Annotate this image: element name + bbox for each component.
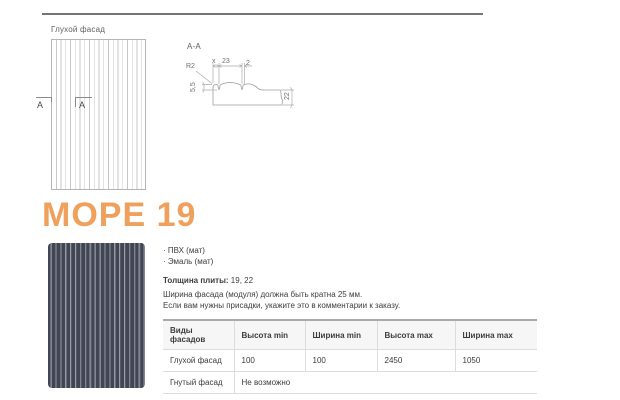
- materials-list: · ПВХ (мат) · Эмаль (мат): [163, 245, 213, 267]
- plate-thickness-label: Толщина плиты:: [163, 276, 229, 285]
- dim-label-radius: R2: [186, 63, 195, 70]
- cell-facade-type: Глухой фасад: [163, 350, 234, 372]
- dim-label-groove: 2: [246, 60, 250, 67]
- cell-width-max: 1050: [455, 350, 537, 372]
- col-header-height-min: Высота min: [234, 320, 305, 350]
- section-profile-drawing: [180, 55, 300, 110]
- section-cut-line-right: [75, 97, 92, 98]
- material-item: · Эмаль (мат): [163, 256, 213, 267]
- top-divider: [42, 13, 483, 15]
- note-drilling-comment: Если вам нужны присадки, укажите это в к…: [163, 300, 400, 311]
- col-header-facade-types: Виды фасадов: [163, 320, 234, 350]
- product-texture-swatch: [48, 243, 145, 388]
- material-item: · ПВХ (мат): [163, 245, 213, 256]
- dim-label-pitch: 23: [222, 58, 230, 65]
- page-title: МОРЕ 19: [42, 196, 196, 235]
- facade-spec-table: Виды фасадов Высота min Ширина min Высот…: [163, 319, 537, 394]
- cell-width-min: 100: [305, 350, 377, 372]
- section-view-label: А-А: [187, 42, 201, 51]
- section-marker-a-right: А: [79, 100, 85, 110]
- section-cut-line-left: [36, 97, 52, 98]
- section-marker-a-left: А: [37, 100, 43, 110]
- table-header-row: Виды фасадов Высота min Ширина min Высот…: [163, 320, 537, 350]
- dim-label-depth: 5,5: [190, 82, 197, 92]
- section-cut-tick-left: [51, 97, 52, 102]
- table-row: Гнутый фасад Не возможно: [163, 372, 537, 394]
- dim-label-thickness: 22: [284, 92, 291, 100]
- col-header-width-max: Ширина max: [455, 320, 537, 350]
- section-cut-tick-right: [75, 97, 76, 107]
- cell-not-possible: Не возможно: [234, 372, 537, 394]
- plate-thickness-value: 19, 22: [229, 276, 253, 285]
- table-row: Глухой фасад 100 100 2450 1050: [163, 350, 537, 372]
- front-view-drawing: [51, 39, 146, 190]
- col-header-width-min: Ширина min: [305, 320, 377, 350]
- col-header-height-max: Высота max: [377, 320, 455, 350]
- cell-height-min: 100: [234, 350, 305, 372]
- note-width-multiple: Ширина фасада (модуля) должна быть кратн…: [163, 289, 362, 300]
- plate-thickness: Толщина плиты: 19, 22: [163, 275, 253, 286]
- front-view-label: Глухой фасад: [51, 25, 105, 34]
- cell-height-max: 2450: [377, 350, 455, 372]
- dim-label-x: x: [212, 58, 216, 65]
- cell-facade-type: Гнутый фасад: [163, 372, 234, 394]
